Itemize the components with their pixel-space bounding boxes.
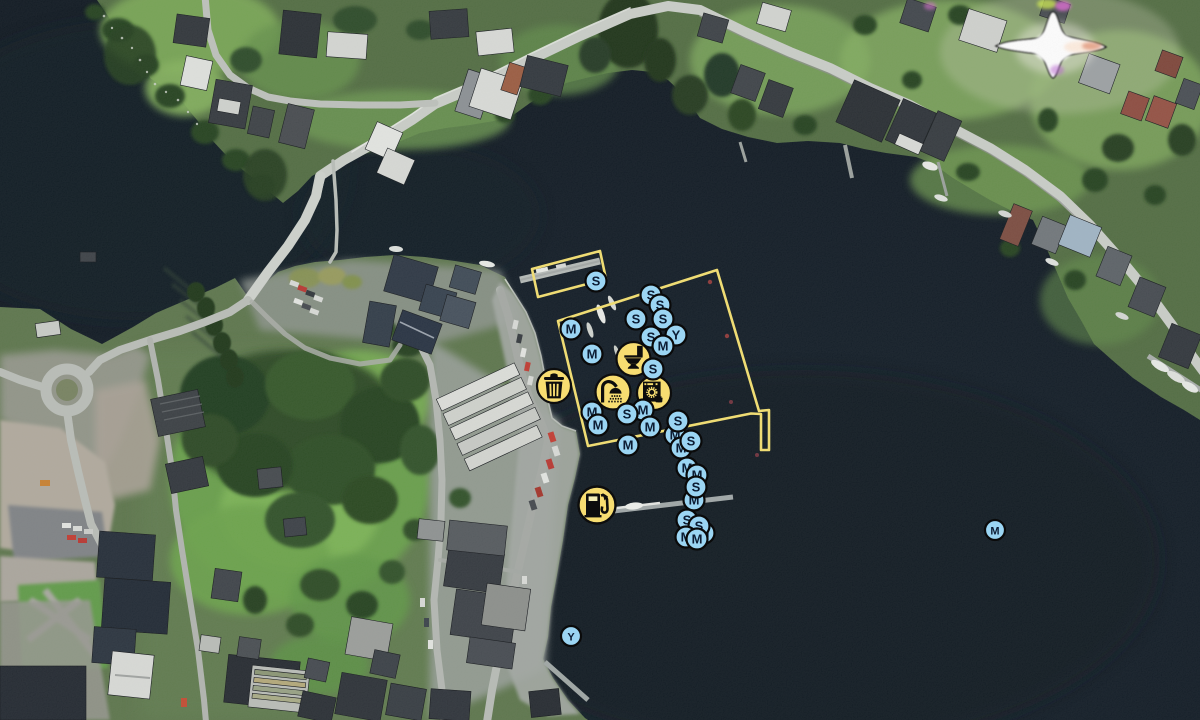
svg-text:S: S — [649, 362, 658, 377]
svg-text:M: M — [692, 532, 703, 547]
svg-text:M: M — [990, 526, 999, 538]
svg-text:S: S — [659, 312, 668, 327]
svg-text:M: M — [566, 322, 577, 337]
svg-text:S: S — [687, 434, 696, 449]
svg-text:S: S — [632, 312, 641, 327]
svg-text:M: M — [593, 418, 604, 433]
svg-text:S: S — [692, 480, 701, 495]
svg-text:M: M — [638, 403, 649, 418]
svg-text:M: M — [658, 339, 669, 354]
svg-text:M: M — [623, 438, 634, 453]
svg-text:Y: Y — [567, 632, 575, 644]
svg-text:M: M — [645, 420, 656, 435]
svg-text:S: S — [623, 407, 632, 422]
svg-text:S: S — [592, 274, 601, 289]
svg-text:S: S — [674, 414, 683, 429]
svg-text:M: M — [587, 347, 598, 362]
